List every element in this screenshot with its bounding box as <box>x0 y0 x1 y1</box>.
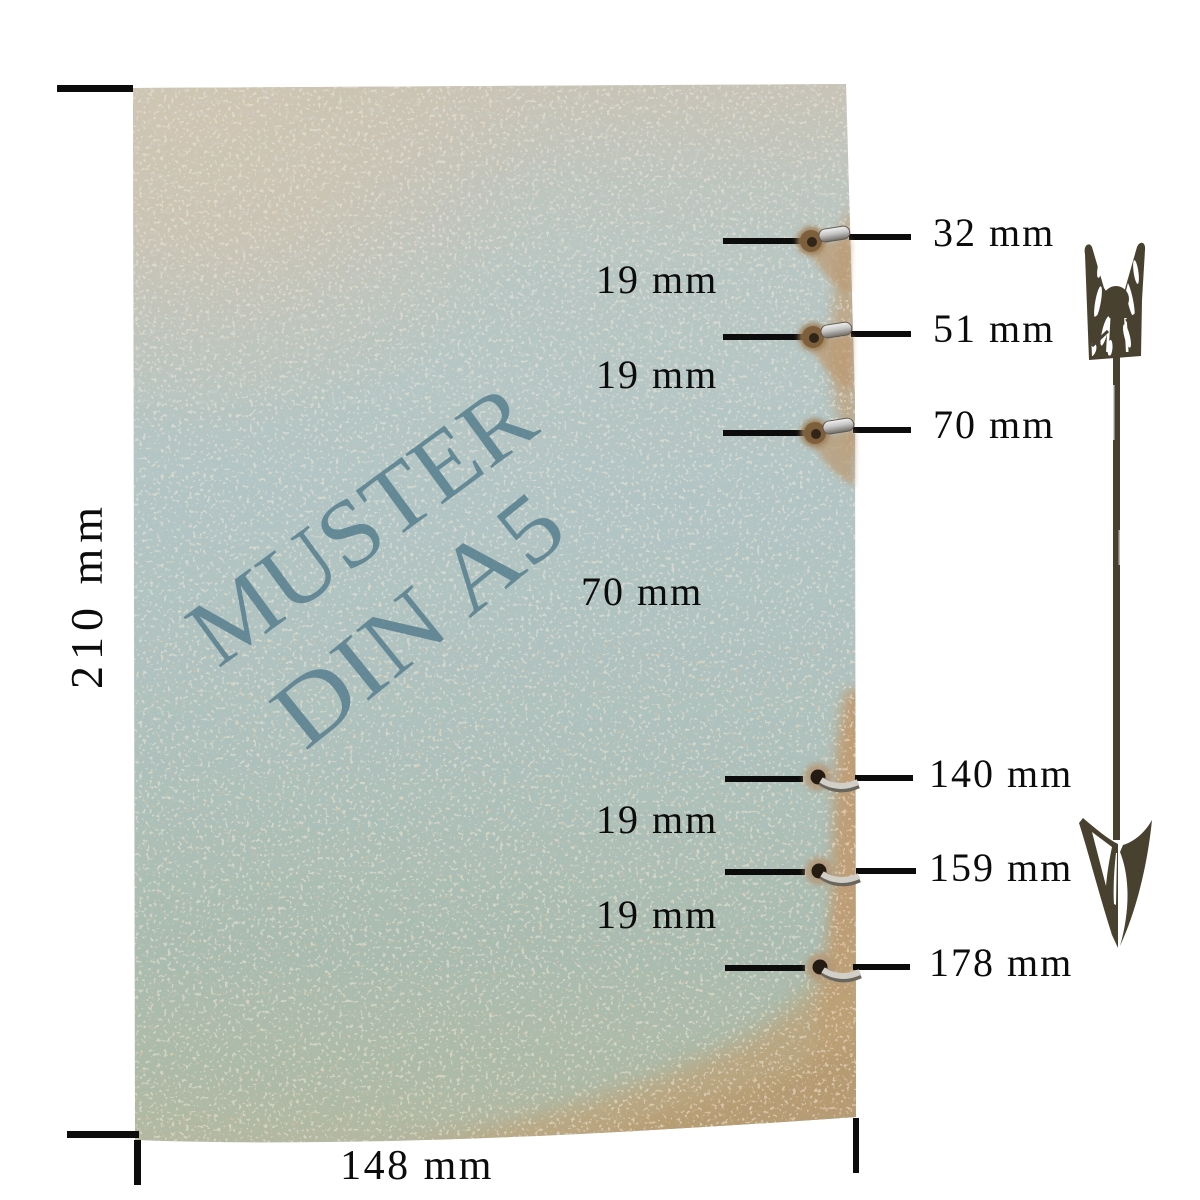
svg-text:159 mm: 159 mm <box>929 845 1073 890</box>
svg-text:19 mm: 19 mm <box>596 352 718 397</box>
svg-text:210 mm: 210 mm <box>61 501 112 689</box>
svg-text:70 mm: 70 mm <box>581 569 703 614</box>
svg-text:70 mm: 70 mm <box>933 402 1055 447</box>
svg-text:178 mm: 178 mm <box>929 940 1073 985</box>
svg-text:51 mm: 51 mm <box>933 306 1055 351</box>
svg-text:19 mm: 19 mm <box>596 257 718 302</box>
svg-text:32 mm: 32 mm <box>933 210 1055 255</box>
svg-text:140 mm: 140 mm <box>929 751 1073 796</box>
svg-text:19 mm: 19 mm <box>596 797 718 842</box>
svg-text:19 mm: 19 mm <box>596 892 718 937</box>
svg-text:148 mm: 148 mm <box>340 1143 494 1189</box>
